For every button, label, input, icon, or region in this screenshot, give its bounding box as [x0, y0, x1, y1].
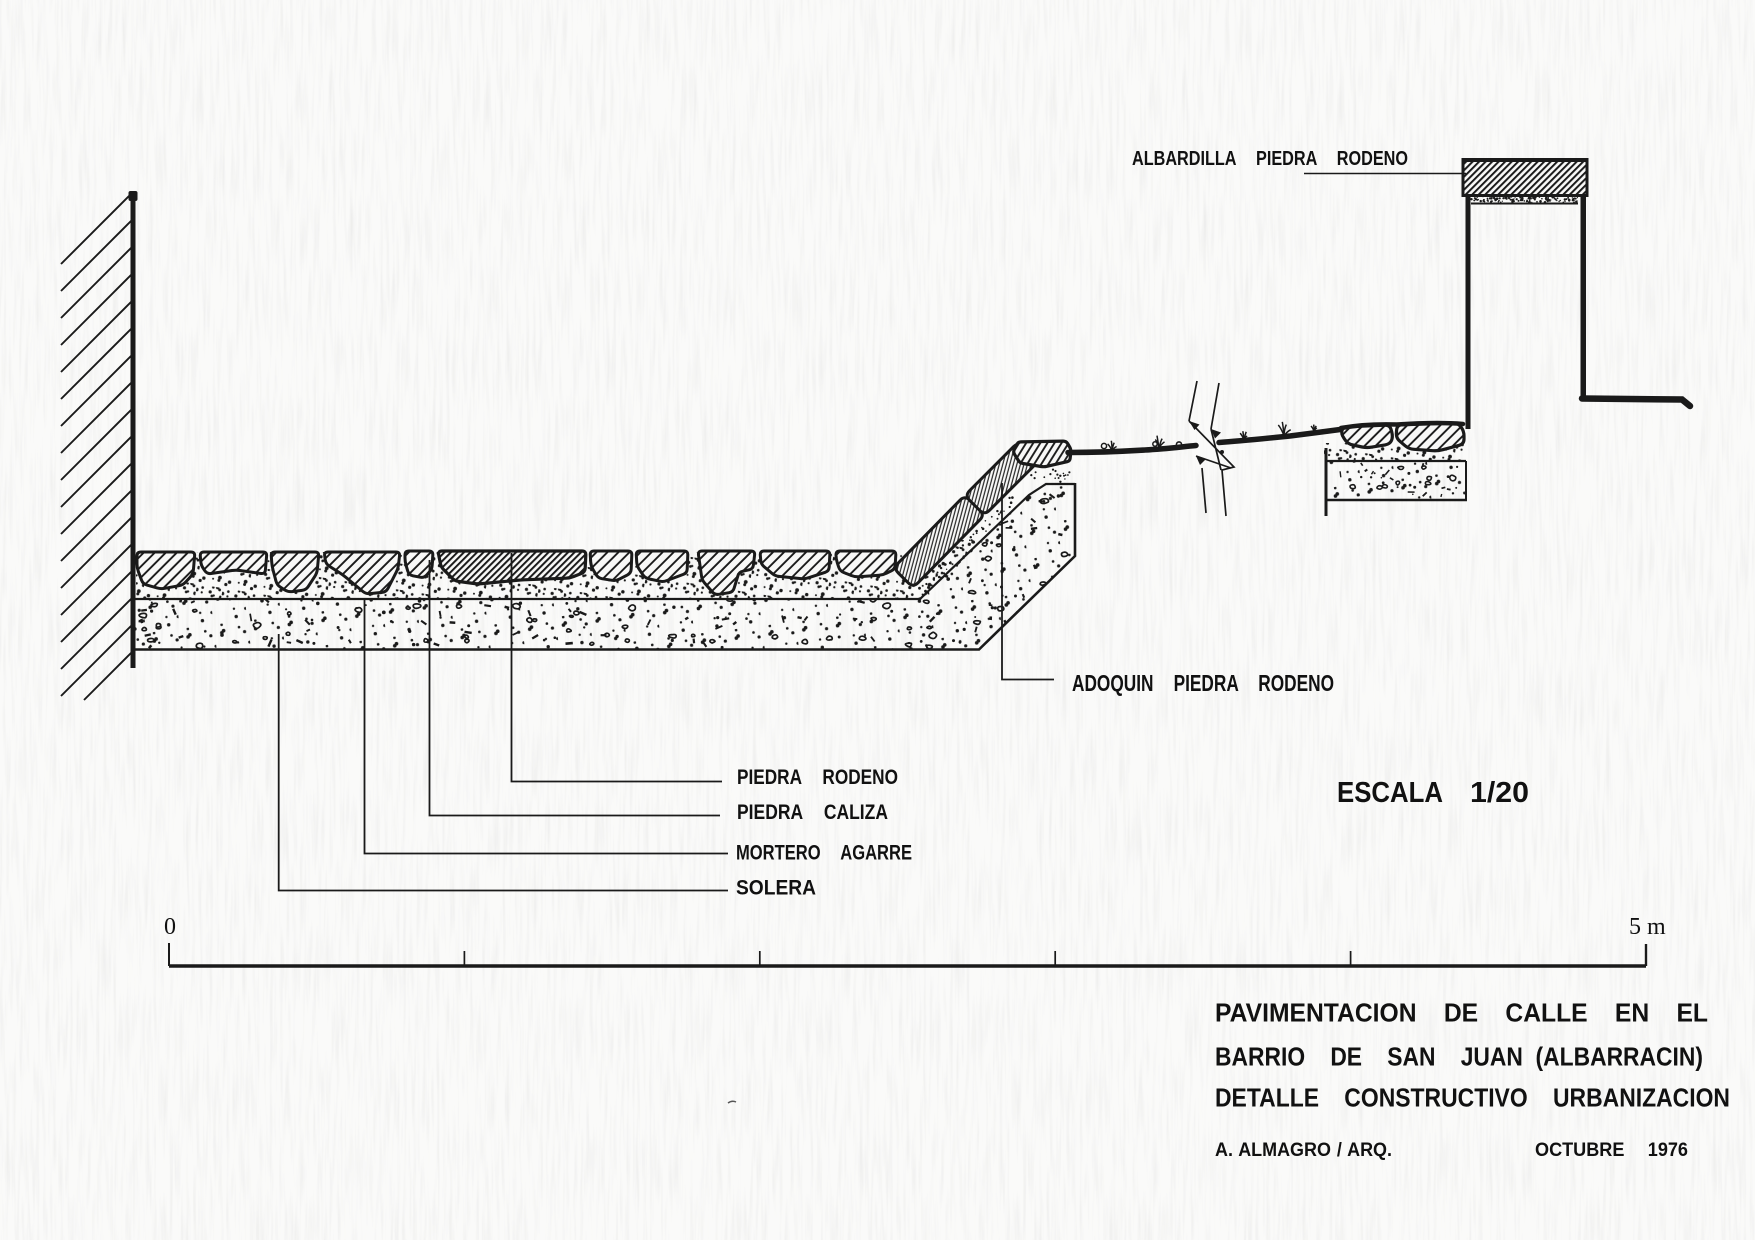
- svg-text:ADOQUIN PIEDRA RODENO: ADOQUIN PIEDRA RODENO: [1072, 670, 1334, 696]
- svg-text:BARRIO DE SAN JUAN (ALBARRA: BARRIO DE SAN JUAN (ALBARRACIN): [1215, 1044, 1703, 1072]
- svg-text:1/20: 1/20: [1470, 777, 1529, 809]
- svg-text:MORTERO AGARRE: MORTERO AGARRE: [736, 842, 912, 865]
- svg-text:0: 0: [164, 914, 176, 940]
- svg-text:ALBARDILLA PIEDRA RODENO: ALBARDILLA PIEDRA RODENO: [1132, 147, 1408, 170]
- svg-text:ESCALA: ESCALA: [1337, 777, 1443, 809]
- svg-text:PIEDRA RODENO: PIEDRA RODENO: [737, 766, 898, 789]
- svg-text:SOLERA: SOLERA: [736, 877, 816, 900]
- svg-text:DETALLE CONSTRUCTIVO URBANIZ: DETALLE CONSTRUCTIVO URBANIZACION: [1215, 1085, 1730, 1113]
- svg-text:PIEDRA CALIZA: PIEDRA CALIZA: [737, 801, 888, 824]
- svg-text:5 m: 5 m: [1629, 914, 1666, 940]
- svg-text:OCTUBRE 1976: OCTUBRE 1976: [1535, 1140, 1688, 1161]
- svg-text:A. ALMAGRO / ARQ.: A. ALMAGRO / ARQ.: [1215, 1140, 1392, 1161]
- svg-text:PAVIMENTACION DE CALLE EN: PAVIMENTACION DE CALLE EN EL: [1215, 1000, 1708, 1028]
